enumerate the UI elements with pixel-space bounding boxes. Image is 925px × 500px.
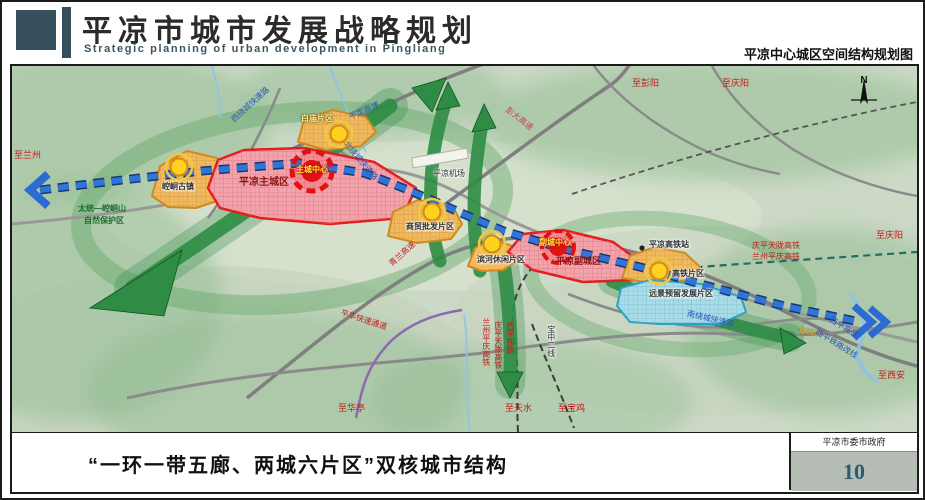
label-zone-main-city: 平凉主城区 bbox=[239, 177, 289, 188]
label-zone-kongtong: 崆峒古镇 bbox=[162, 183, 194, 192]
label-lzpq-hsr-vertical: 兰州平庆高铁 bbox=[481, 318, 490, 366]
map-title: 平凉中心城区空间结构规划图 bbox=[744, 44, 913, 63]
label-to-tianshui: 至天水 bbox=[505, 404, 532, 414]
authority-name: 平凉市委市政府 bbox=[791, 433, 917, 452]
label-sub-center: 副城中心 bbox=[539, 239, 571, 248]
label-xiping-rail-vertical: 西平铁路 bbox=[505, 322, 514, 354]
label-zone-sub-city: 平凉副城区 bbox=[556, 257, 601, 267]
sheet-header: 平凉市城市发展战略规划 Strategic planning of urban … bbox=[2, 2, 923, 64]
label-hsr-station: 平凉高铁站 bbox=[649, 241, 689, 250]
label-to-pengyang: 至彭阳 bbox=[632, 79, 659, 89]
sheet-footer: “一环一带五廊、两城六片区”双核城市结构 平凉市委市政府 10 bbox=[10, 433, 919, 494]
label-to-lanzhou: 至兰州 bbox=[14, 151, 41, 161]
sheet-subtitle: Strategic planning of urban development … bbox=[84, 43, 447, 55]
label-lzpq-hsr: 兰州平庆高铁 bbox=[752, 253, 800, 262]
label-airport: 平凉机场 bbox=[433, 170, 465, 179]
label-to-qingyang-top: 至庆阳 bbox=[722, 79, 749, 89]
authority-box: 平凉市委市政府 10 bbox=[789, 433, 917, 490]
label-zone-trade: 商贸批发片区 bbox=[406, 223, 454, 232]
label-nature-reserve-line2: 自然保护区 bbox=[84, 217, 124, 226]
label-to-qingyang-right: 至庆阳 bbox=[876, 231, 903, 241]
label-qptl-hsr-vertical: 庆平天陇高铁 bbox=[493, 321, 502, 369]
label-zone-reserved: 远景预留发展片区 bbox=[649, 290, 713, 299]
label-zone-baimiao: 白庙片区 bbox=[301, 115, 333, 124]
label-to-baoji: 至宝鸡 bbox=[558, 404, 585, 414]
compass-rose: N bbox=[844, 76, 884, 124]
label-main-center: 主城中心 bbox=[296, 166, 328, 175]
page-number: 10 bbox=[791, 452, 917, 491]
plan-map: N 至兰州 太统—崆峒山 自然保护区 崆峒古镇 平凉主城区 主城中心 白庙片区 … bbox=[10, 64, 919, 434]
structure-caption: “一环一带五廊、两城六片区”双核城市结构 bbox=[88, 449, 508, 478]
logo-square bbox=[16, 10, 56, 50]
label-baozhong-line: 宝中二线 bbox=[546, 325, 555, 357]
label-to-huating: 至华亭 bbox=[338, 404, 365, 414]
label-qptl-hsr: 庆平天陇高铁 bbox=[752, 242, 800, 251]
label-to-xian: 至西安 bbox=[878, 371, 905, 381]
plan-sheet: 平凉市城市发展战略规划 Strategic planning of urban … bbox=[0, 0, 925, 500]
label-zone-hsr: 高铁片区 bbox=[672, 270, 704, 279]
label-nature-reserve-line1: 太统—崆峒山 bbox=[78, 205, 126, 214]
title-divider-bar bbox=[62, 7, 71, 58]
label-zone-leisure: 滨河休闲片区 bbox=[477, 256, 525, 265]
compass-needle-icon bbox=[844, 76, 884, 110]
hsr-station-dot bbox=[639, 245, 644, 250]
